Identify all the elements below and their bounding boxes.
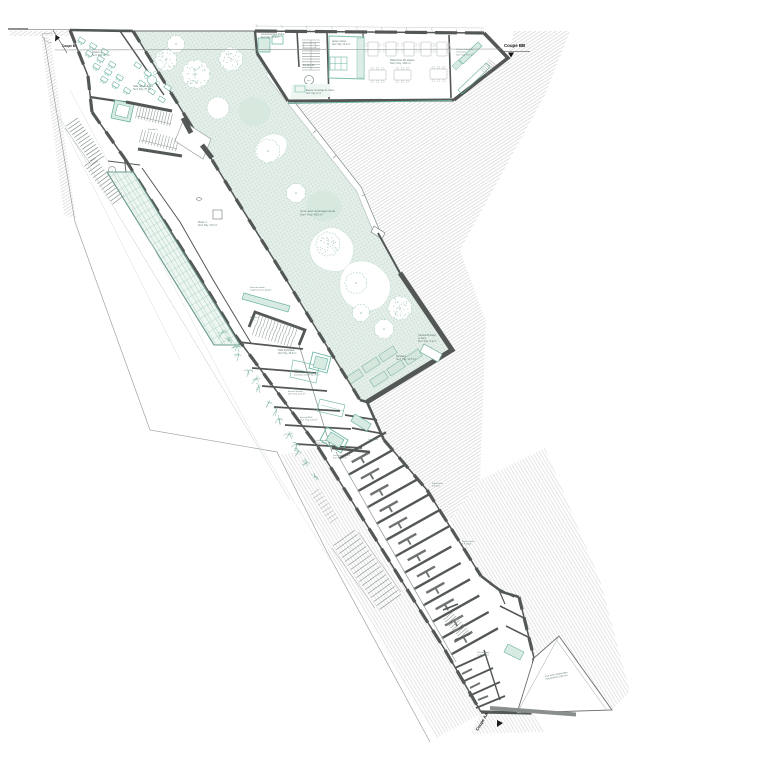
svg-text:Salle des activitésSurf. Pay.: Salle des activitésSurf. Pay. 57 m² — [133, 85, 154, 91]
svg-text:Coupe BB: Coupe BB — [504, 43, 525, 48]
svg-text:asc.: asc. — [307, 80, 311, 82]
svg-text:Escalier 1: Escalier 1 — [148, 128, 158, 131]
svg-text:Salle RythmiqueSurf. Pay. 36.5: Salle RythmiqueSurf. Pay. 36.5 m² — [278, 349, 297, 355]
svg-text:Préchauffagecompresseur: Préchauffagecompresseur — [477, 651, 490, 657]
svg-text:Escalier B4: Escalier B4 — [303, 64, 315, 67]
